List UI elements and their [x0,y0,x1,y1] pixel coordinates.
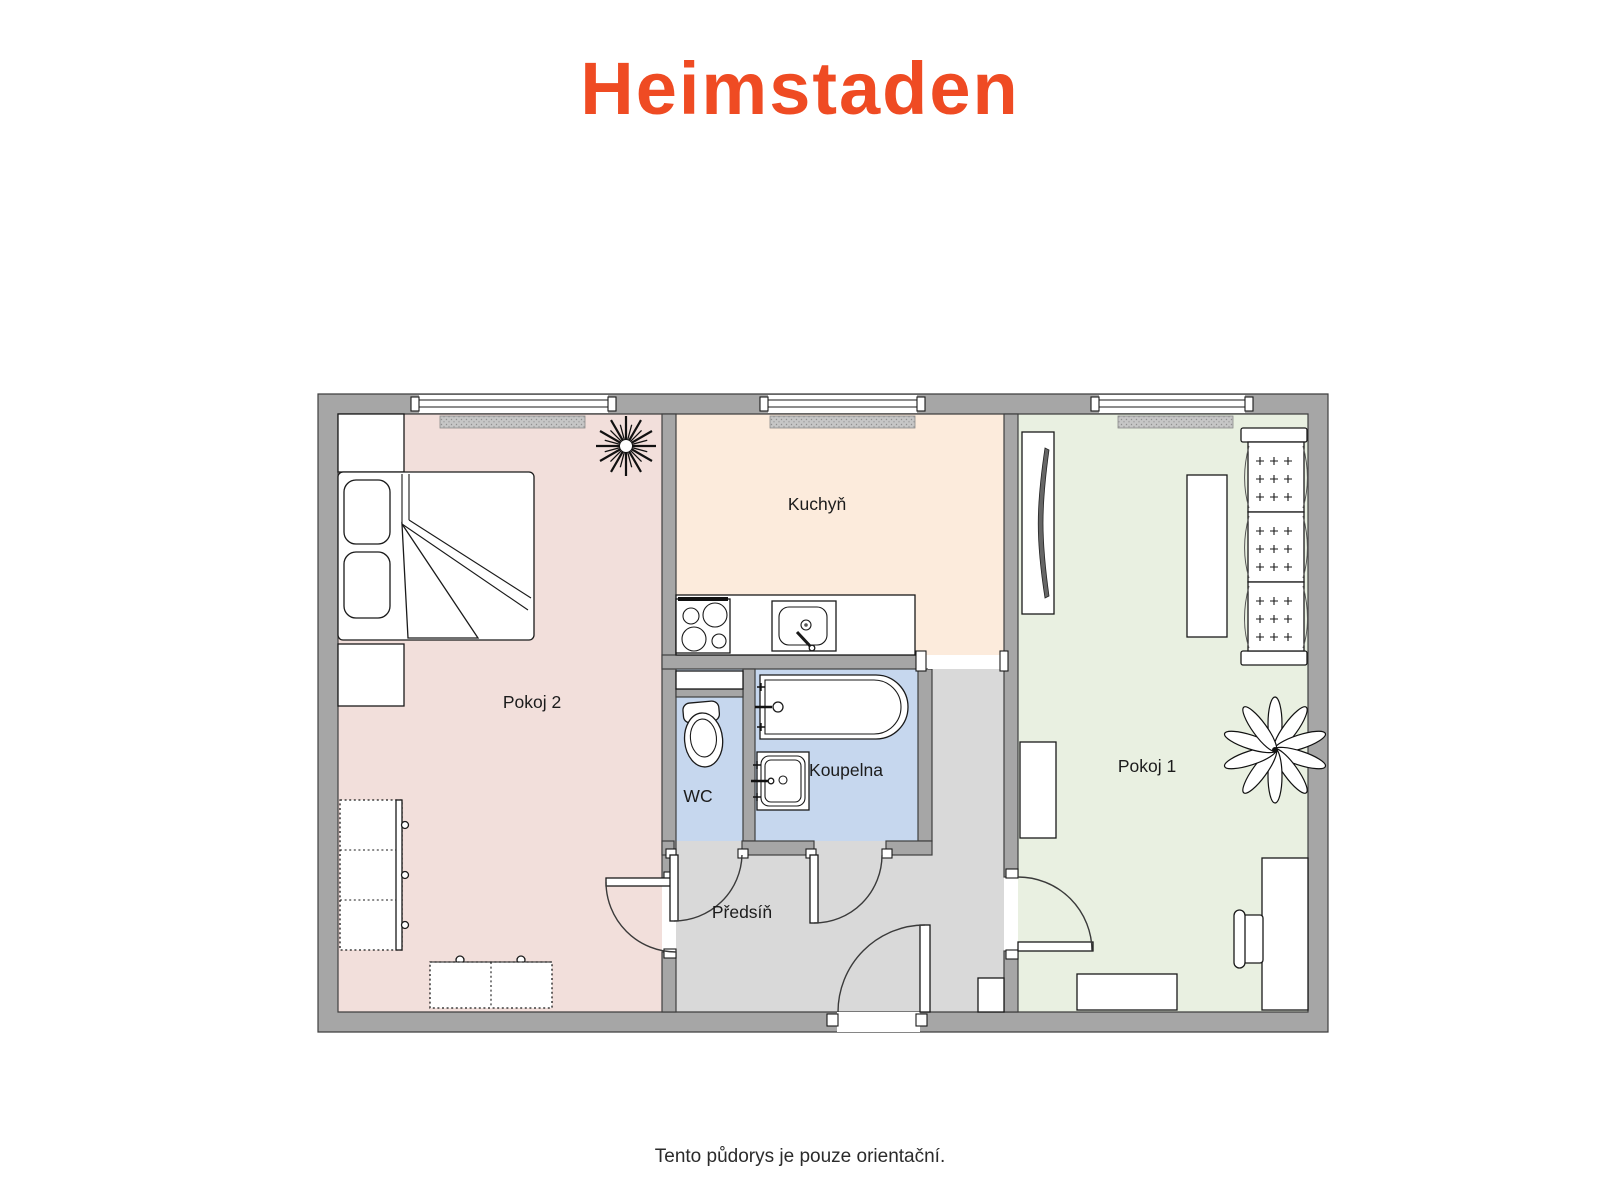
label-kuchyn: Kuchyň [788,494,846,514]
label-koupelna: Koupelna [809,760,883,780]
wall-pokoj2-upper [662,414,676,882]
window-pokoj2 [411,395,616,413]
label-pokoj1: Pokoj 1 [1118,756,1176,776]
radiator-kuchyn [770,416,915,428]
wall-bath-bottom-b [742,841,814,855]
nightstand-top-icon [338,414,404,472]
wall-wc-divider [743,669,755,841]
handle-icon [402,872,409,879]
wall-pokoj1-lower [1004,951,1018,1012]
desk-icon [1262,858,1308,1010]
wall-pokoj1-upper [1004,414,1018,877]
pillow-icon [344,480,390,544]
handle-icon [402,822,409,829]
chair-icon [1234,910,1263,968]
label-pokoj2: Pokoj 2 [503,692,561,712]
sofa-icon [1241,428,1308,665]
wc-shelf-icon [676,671,743,689]
wall-bath-bottom-c [886,841,932,855]
low-cabinet-icon [1077,974,1177,1010]
pillow-icon [344,552,390,618]
bed-icon [338,472,534,640]
faucet-icon [768,778,774,784]
wall-kitchen-bottom [662,655,918,669]
door-leaf [670,855,678,921]
window-pokoj1 [1091,395,1253,413]
wall-bathroom-right [918,669,932,841]
kitchen-furniture [676,595,915,655]
dresser-icon [430,956,552,1008]
door-leaf [920,925,930,1012]
nightstand-bottom-icon [338,644,404,706]
wall-wc-shelf-band [676,689,743,697]
tv-icon [1022,432,1054,614]
bathtub-icon [755,675,908,739]
floorplan-svg: Pokoj 2 Kuchyň Pokoj 1 WC Koupelna Předs… [310,388,1330,1033]
handle-icon [402,922,409,929]
table-icon [1187,475,1227,637]
door-leaf [606,878,676,886]
radiator-pokoj1 [1118,416,1233,428]
faucet-icon [809,645,815,651]
wall-pokoj2-lower [662,952,676,1012]
kitchen-sink-icon [772,601,836,651]
door-leaf [1018,942,1093,951]
disclaimer-note: Tento půdorys je pouze orientační. [0,1146,1600,1168]
label-wc: WC [683,786,712,806]
windows [411,395,1253,413]
hallway-niche [978,978,1004,1012]
radiator-pokoj2 [440,416,585,428]
stove-icon [676,597,730,653]
wardrobe-icon [340,800,409,950]
window-kuchyn [760,395,925,413]
bath-sink-icon [751,752,809,810]
wall-cabinet-icon [1020,742,1056,838]
label-predsin: Předsíň [712,902,772,922]
heimstaden-logo: Heimstaden [0,46,1600,131]
door-leaf [810,855,818,923]
floorplan: Pokoj 2 Kuchyň Pokoj 1 WC Koupelna Předs… [310,388,1330,1033]
faucet-icon [773,702,783,712]
